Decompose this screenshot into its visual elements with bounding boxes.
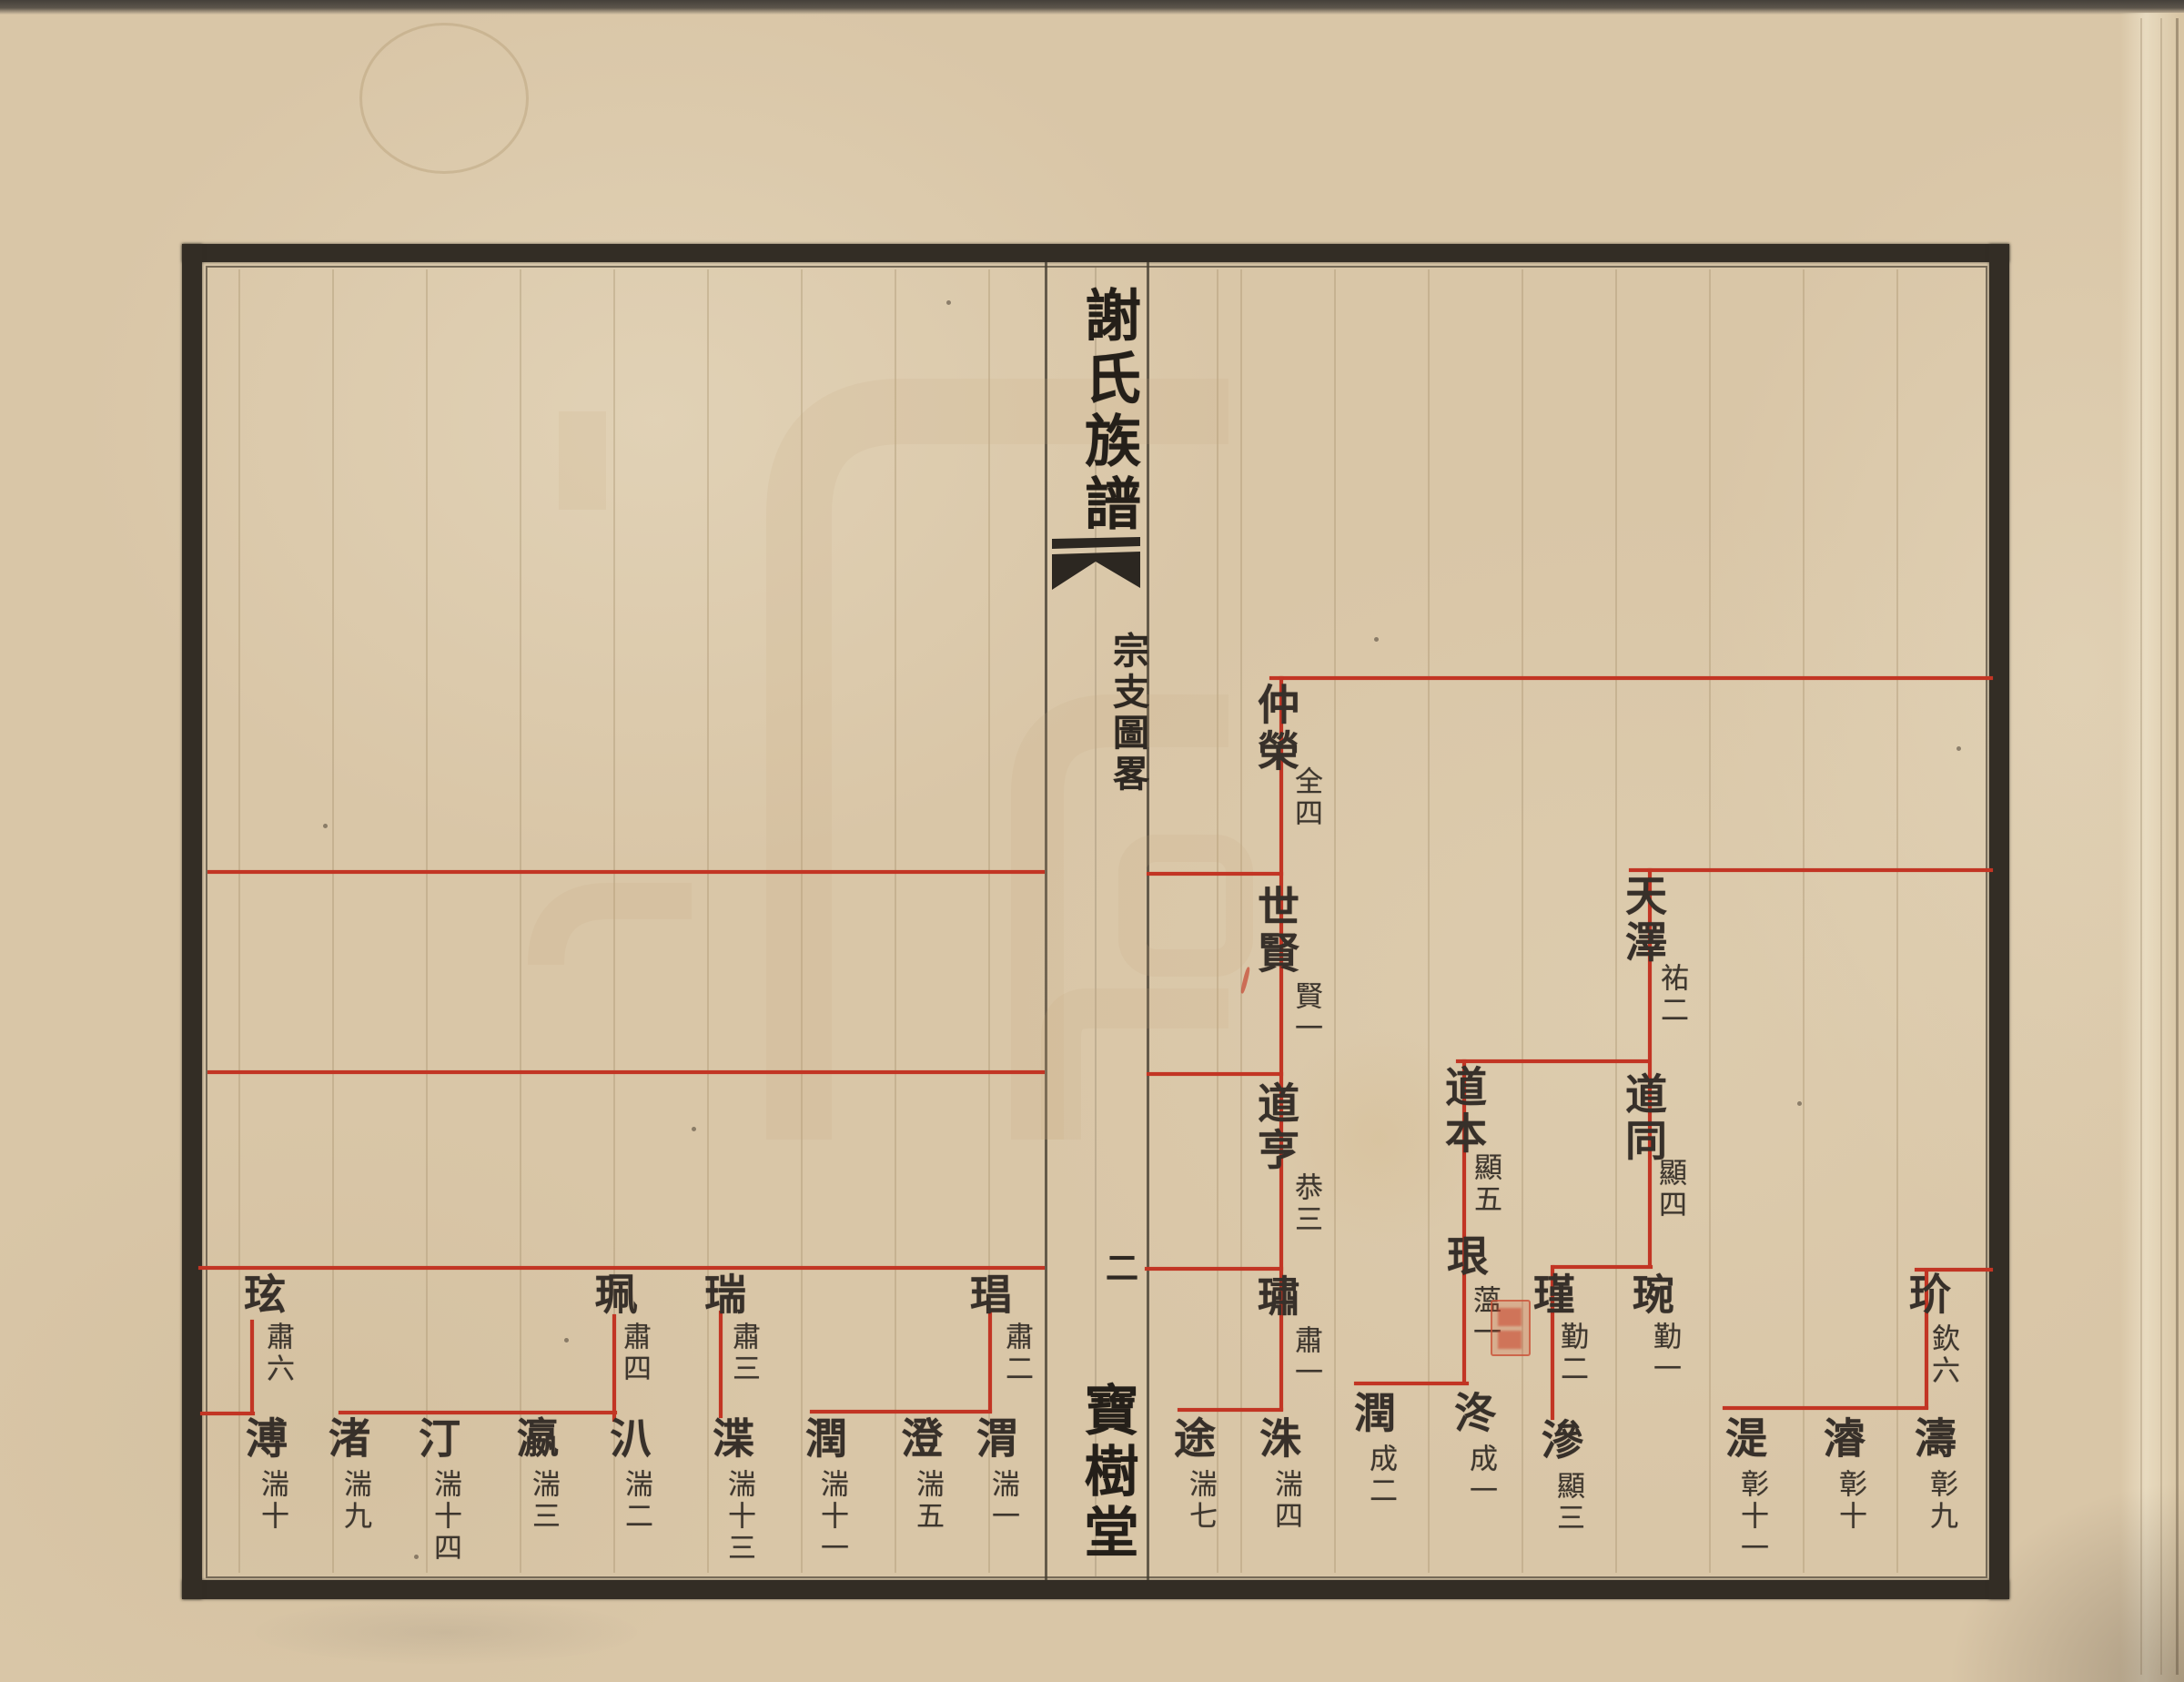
person-rank-rui: 肅三 xyxy=(723,1322,764,1385)
person-name-gen: 珢 xyxy=(1435,1234,1495,1281)
person-name-daoben: 道本 xyxy=(1433,1065,1493,1158)
person-name-pa: 汃 xyxy=(598,1416,658,1463)
sibling-line xyxy=(339,1411,617,1414)
person-name-ting: 汀 xyxy=(407,1416,467,1463)
person-name-rui: 瑞 xyxy=(693,1272,753,1319)
sibling-line xyxy=(1552,1265,1653,1269)
person-rank-shen: 顯三 xyxy=(1548,1471,1589,1535)
person-rank-shixian: 賢一 xyxy=(1286,981,1327,1045)
person-name-jun: 濬 xyxy=(1812,1416,1872,1463)
person-rank-xuan: 肅六 xyxy=(258,1322,298,1385)
person-rank-xie2: 湍十三 xyxy=(719,1469,760,1565)
person-name-zhu2: 渚 xyxy=(317,1416,377,1463)
person-name-zhong2: 泈 xyxy=(1442,1391,1502,1437)
sibling-line xyxy=(1147,872,1283,876)
section-title: 宗支圖畧 xyxy=(1101,632,1154,795)
sibling-line xyxy=(1147,1072,1283,1076)
person-name-wan: 琬 xyxy=(1621,1272,1681,1319)
person-rank-zhongrong: 全四 xyxy=(1286,766,1327,830)
person-rank-ying: 湍三 xyxy=(523,1469,564,1533)
sibling-line xyxy=(207,870,1045,874)
sibling-line xyxy=(200,1412,255,1415)
person-rank-tu: 湍七 xyxy=(1180,1469,1221,1533)
book-scan: 謝氏族譜 宗支圖畧 二 寶樹堂 仲榮全四世賢賢一道亨恭三璛肅一洙湍四途湍七琩肅二… xyxy=(0,0,2184,1682)
sibling-line xyxy=(207,1070,1045,1074)
person-rank-pu: 湍十 xyxy=(252,1469,293,1533)
sibling-line xyxy=(1354,1382,1469,1385)
person-rank-wan: 勤一 xyxy=(1644,1322,1685,1385)
person-rank-run2: 湍十一 xyxy=(812,1469,853,1565)
sibling-line xyxy=(1145,1267,1283,1271)
person-name-daotong: 道同 xyxy=(1613,1072,1673,1165)
sibling-line xyxy=(1723,1406,1928,1410)
person-rank-jie: 欽六 xyxy=(1923,1323,1964,1387)
sibling-line xyxy=(810,1410,992,1413)
person-name-ying: 瀛 xyxy=(505,1416,565,1463)
person-name-su: 璛 xyxy=(1246,1274,1306,1321)
person-rank-shi: 彰十一 xyxy=(1732,1469,1773,1565)
book-title: 謝氏族譜 xyxy=(1067,286,1148,537)
person-rank-daotong: 顯四 xyxy=(1650,1158,1691,1221)
person-rank-jin: 勤二 xyxy=(1552,1322,1592,1385)
person-name-zhu: 洙 xyxy=(1248,1416,1308,1463)
person-name-tu: 途 xyxy=(1162,1416,1222,1463)
sibling-line xyxy=(1269,676,1993,680)
person-rank-wei: 湍一 xyxy=(983,1469,1024,1533)
person-name-shi: 湜 xyxy=(1714,1416,1774,1463)
person-name-daoheng: 道亨 xyxy=(1246,1081,1306,1174)
descent-line xyxy=(250,1320,254,1414)
person-rank-zhong2: 成一 xyxy=(1461,1444,1501,1507)
sibling-line xyxy=(198,1266,1045,1270)
person-rank-jun: 彰十 xyxy=(1830,1469,1871,1533)
person-name-cheng: 澄 xyxy=(889,1416,949,1463)
person-name-zhongrong: 仲榮 xyxy=(1246,683,1306,775)
person-rank-zhu: 湍四 xyxy=(1266,1469,1307,1533)
person-rank-su: 肅一 xyxy=(1286,1325,1327,1389)
person-rank-run3: 成二 xyxy=(1360,1444,1401,1507)
hall-name: 寶樹堂 xyxy=(1067,1382,1147,1565)
page-number: 二 xyxy=(1096,1251,1143,1283)
person-rank-daoheng: 恭三 xyxy=(1286,1172,1327,1236)
person-name-tao: 濤 xyxy=(1903,1416,1963,1463)
person-name-xie2: 渫 xyxy=(701,1416,761,1463)
descent-line xyxy=(719,1311,723,1418)
person-rank-pei: 肅四 xyxy=(614,1322,655,1385)
person-rank-chang: 肅二 xyxy=(996,1322,1037,1385)
person-name-chang: 琩 xyxy=(958,1272,1018,1319)
person-rank-zhu2: 湍九 xyxy=(335,1469,376,1533)
person-rank-tao: 彰九 xyxy=(1921,1469,1962,1533)
person-name-tianze: 天澤 xyxy=(1613,874,1673,967)
sibling-line xyxy=(1629,868,1993,872)
person-name-wei: 渭 xyxy=(965,1416,1025,1463)
person-name-xuan: 玹 xyxy=(232,1272,292,1319)
fishtail-icon xyxy=(1052,537,1141,593)
sibling-line xyxy=(1178,1408,1283,1412)
person-rank-pa: 湍二 xyxy=(616,1469,657,1533)
collector-seal xyxy=(1491,1300,1531,1356)
person-name-run3: 潤 xyxy=(1342,1391,1402,1437)
person-name-run2: 潤 xyxy=(794,1416,854,1463)
person-rank-daoben: 顯五 xyxy=(1465,1152,1506,1216)
sibling-line xyxy=(1456,1059,1651,1063)
person-name-jie: 玠 xyxy=(1897,1272,1957,1319)
descent-line xyxy=(988,1311,992,1413)
person-name-shixian: 世賢 xyxy=(1246,885,1306,978)
person-rank-cheng: 湍五 xyxy=(907,1469,948,1533)
person-name-shen: 滲 xyxy=(1530,1418,1590,1464)
person-rank-tianze: 祐二 xyxy=(1652,963,1693,1027)
person-name-pei: 珮 xyxy=(583,1272,643,1319)
person-name-pu: 溥 xyxy=(234,1416,294,1463)
person-rank-ting: 湍十四 xyxy=(425,1469,466,1565)
